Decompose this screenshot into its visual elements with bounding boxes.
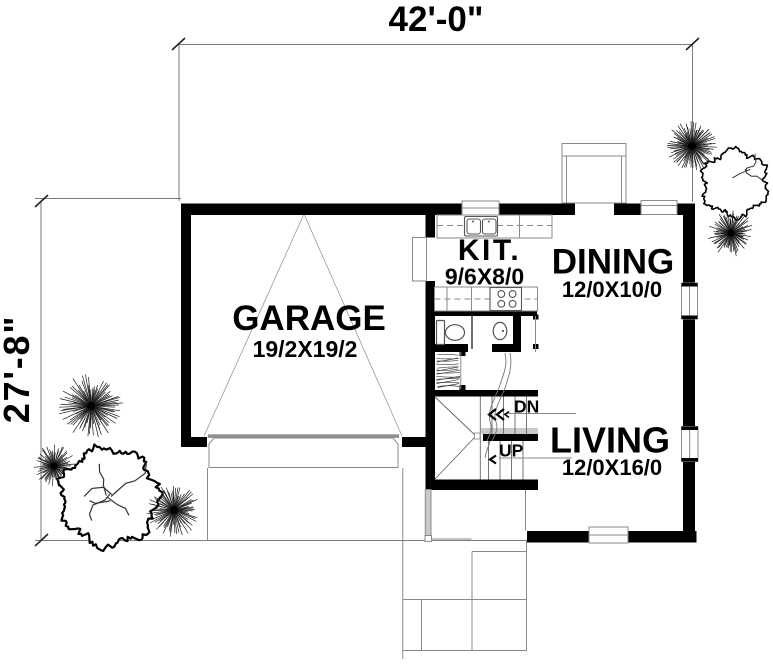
svg-text:42'-0": 42'-0": [389, 0, 484, 39]
svg-text:27'-8": 27'-8": [0, 315, 37, 423]
svg-text:12/0X16/0: 12/0X16/0: [562, 455, 662, 480]
svg-text:19/2X19/2: 19/2X19/2: [253, 336, 358, 362]
svg-text:12/0X10/0: 12/0X10/0: [562, 277, 662, 302]
svg-text:KIT.: KIT.: [458, 234, 521, 267]
svg-text:GARAGE: GARAGE: [232, 299, 386, 338]
svg-text:9/6X8/0: 9/6X8/0: [445, 264, 524, 290]
svg-text:DINING: DINING: [552, 243, 675, 282]
